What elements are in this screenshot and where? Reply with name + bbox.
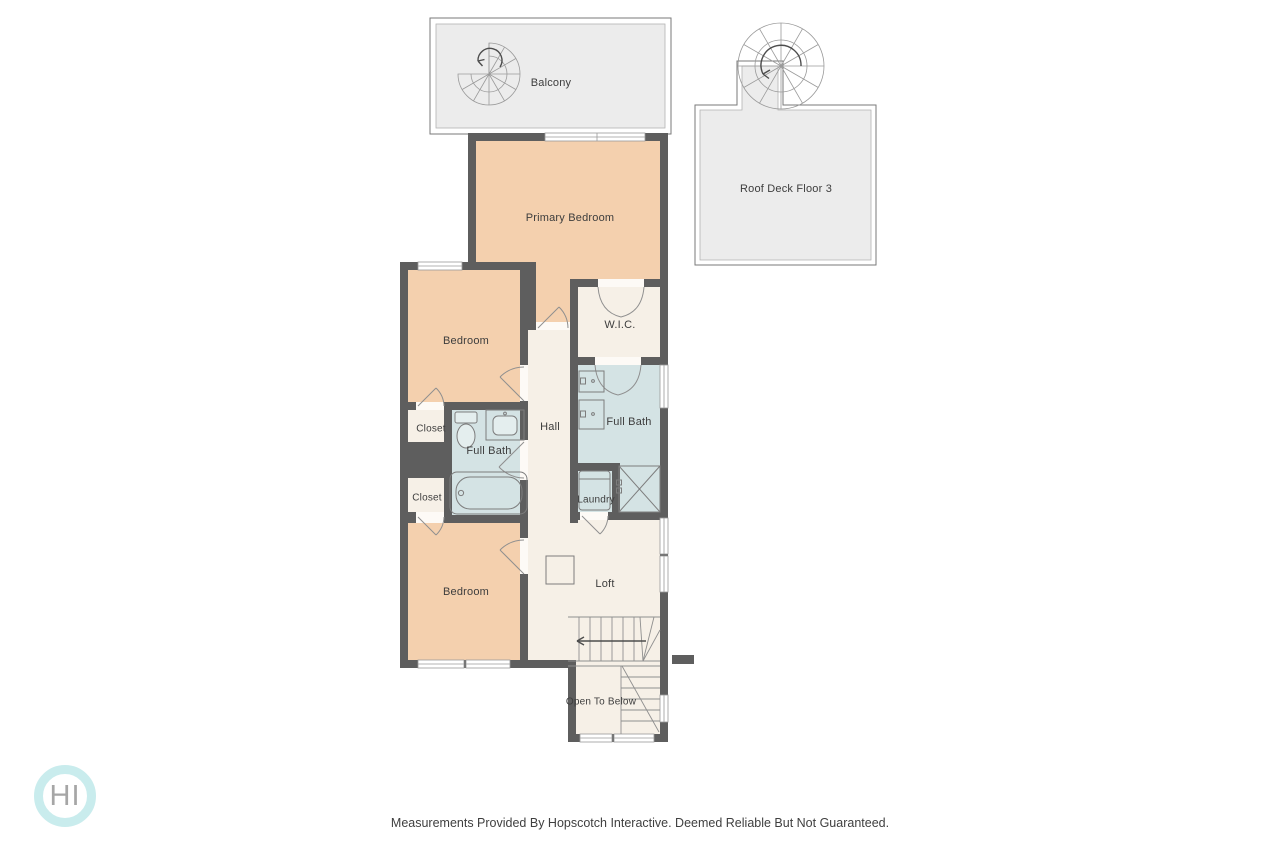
room-label-full-bath-left: Full Bath (466, 445, 511, 457)
window (466, 660, 510, 668)
room-stairwell (568, 615, 668, 742)
room-label-bedroom-lower: Bedroom (443, 586, 489, 598)
room-label-primary-bedroom: Primary Bedroom (526, 212, 615, 224)
room-label-closet-upper: Closet (416, 424, 446, 435)
logo-text: HI (50, 780, 81, 813)
window (418, 660, 464, 668)
room-label-balcony: Balcony (531, 77, 572, 89)
floorplan-page: Balcony Roof Deck Floor 3 Primary Bedroo… (0, 0, 1280, 853)
window (418, 262, 462, 270)
room-label-closet-lower: Closet (412, 493, 442, 504)
room-fills (400, 133, 668, 742)
disclaimer-text: Measurements Provided By Hopscotch Inter… (0, 816, 1280, 830)
room-label-hall: Hall (540, 421, 560, 433)
window (660, 518, 668, 554)
balcony-deck (430, 18, 671, 134)
roof-deck (695, 23, 876, 265)
toilet-icon (455, 412, 477, 448)
window (660, 365, 668, 408)
room-label-open-to-below: Open To Below (566, 697, 636, 708)
window (545, 133, 645, 141)
window (660, 556, 668, 592)
room-label-bedroom-upper: Bedroom (443, 335, 489, 347)
window (614, 734, 654, 742)
room-label-laundry: Laundry (577, 495, 615, 506)
window (660, 695, 668, 722)
window (580, 734, 612, 742)
room-label-roof-deck: Roof Deck Floor 3 (740, 183, 832, 195)
room-label-full-bath-right: Full Bath (606, 416, 651, 428)
room-label-loft: Loft (595, 578, 614, 590)
room-label-wic: W.I.C. (604, 319, 635, 331)
